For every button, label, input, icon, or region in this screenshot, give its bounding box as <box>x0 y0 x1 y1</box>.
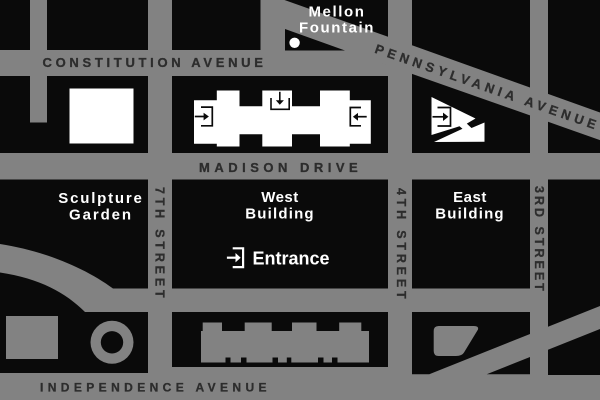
svg-text:East: East <box>453 189 487 206</box>
svg-text:Mellon: Mellon <box>308 4 365 21</box>
svg-text:Entrance: Entrance <box>253 249 330 269</box>
svg-text:West: West <box>261 189 299 206</box>
svg-text:Building: Building <box>435 206 505 223</box>
svg-text:Fountain: Fountain <box>299 20 375 37</box>
svg-text:3RD STREET: 3RD STREET <box>532 186 546 294</box>
svg-text:4TH STREET: 4TH STREET <box>394 188 408 302</box>
svg-text:MADISON DRIVE: MADISON DRIVE <box>199 160 362 175</box>
svg-text:Sculpture: Sculpture <box>58 190 143 207</box>
svg-text:Building: Building <box>245 206 315 223</box>
svg-text:CONSTITUTION AVENUE: CONSTITUTION AVENUE <box>43 55 267 70</box>
svg-text:7TH STREET: 7TH STREET <box>153 187 167 301</box>
svg-text:Garden: Garden <box>69 207 133 224</box>
svg-text:INDEPENDENCE AVENUE: INDEPENDENCE AVENUE <box>40 381 271 395</box>
